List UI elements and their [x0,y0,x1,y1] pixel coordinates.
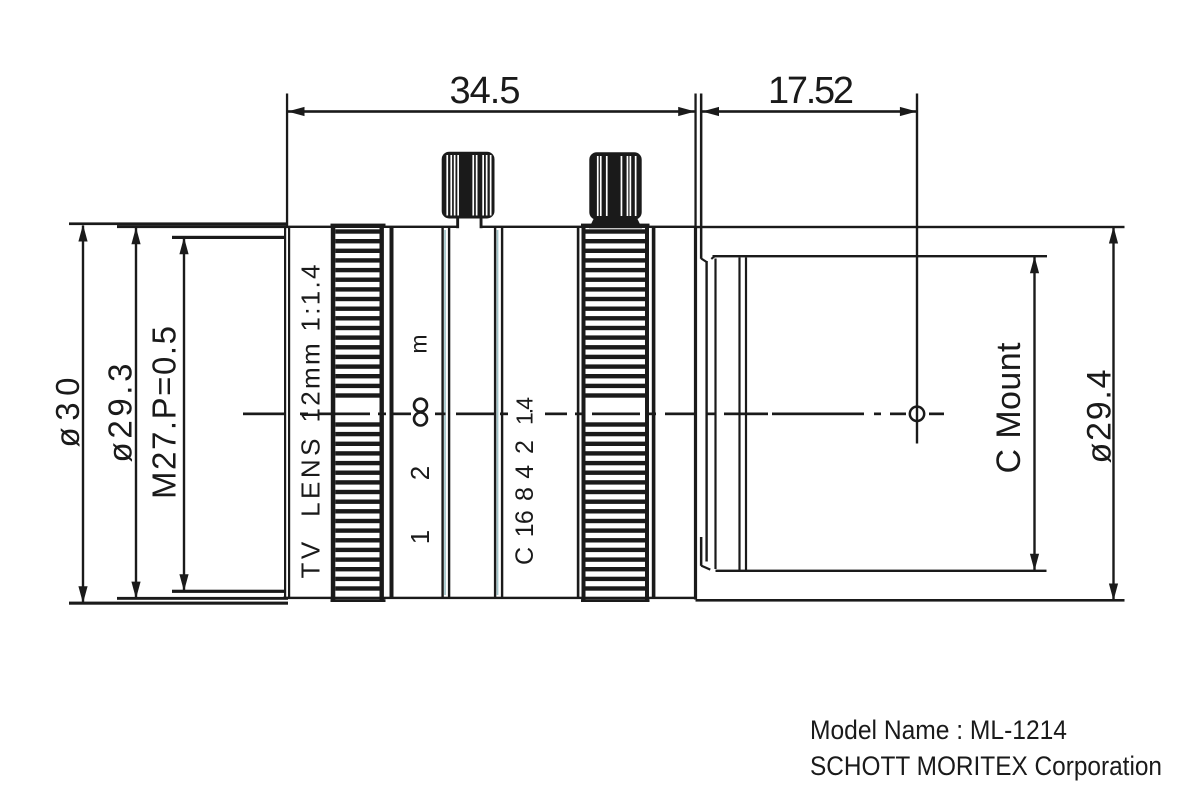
svg-text:1: 1 [405,530,435,544]
svg-text:ø30: ø30 [49,378,86,448]
svg-text:34.5: 34.5 [450,70,521,112]
svg-text:SCHOTT MORITEX Corporation: SCHOTT MORITEX Corporation [810,751,1162,781]
svg-text:ø29.4: ø29.4 [1080,370,1118,464]
svg-text:2: 2 [405,466,435,480]
svg-text:m: m [405,334,431,353]
svg-text:16: 16 [511,510,539,537]
svg-text:4: 4 [511,465,539,479]
svg-text:C: C [511,547,539,565]
svg-text:2: 2 [511,440,539,454]
svg-text:8: 8 [511,487,539,501]
svg-text:TV LENS: TV LENS [296,439,326,579]
svg-text:Model Name : ML-1214: Model Name : ML-1214 [810,715,1067,745]
svg-text:17.52: 17.52 [768,70,854,112]
svg-text:M27.P=0.5: M27.P=0.5 [146,326,183,499]
svg-text:12mm 1:1.4: 12mm 1:1.4 [296,265,326,423]
svg-text:1.4: 1.4 [512,397,538,425]
svg-text:C Mount: C Mount [990,342,1028,474]
svg-text:ø29.3: ø29.3 [102,364,139,463]
